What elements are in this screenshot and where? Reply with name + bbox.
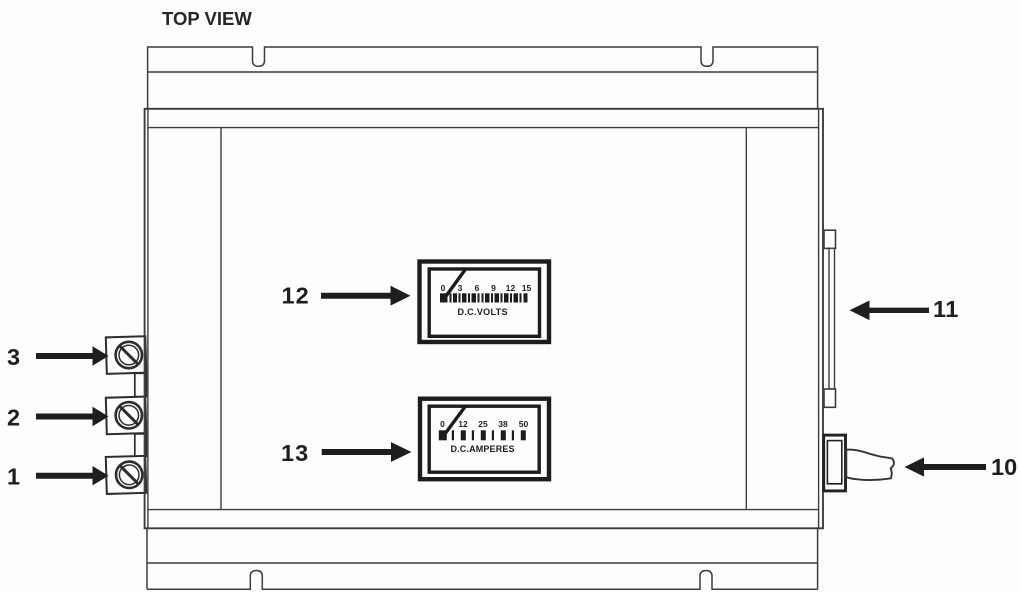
svg-text:50: 50 [519,419,529,429]
svg-text:9: 9 [491,283,496,293]
svg-text:12: 12 [282,283,310,309]
svg-text:3: 3 [458,283,463,293]
svg-text:D.C.VOLTS: D.C.VOLTS [458,307,508,317]
svg-text:3: 3 [7,344,20,370]
svg-text:15: 15 [522,283,532,293]
svg-text:2: 2 [7,405,20,431]
svg-text:12: 12 [506,283,516,293]
svg-text:0: 0 [440,419,445,429]
svg-text:11: 11 [933,296,959,322]
svg-text:0: 0 [441,283,446,293]
svg-text:1: 1 [7,464,20,490]
svg-text:13: 13 [281,440,309,466]
svg-text:25: 25 [478,419,488,429]
svg-text:6: 6 [475,283,480,293]
svg-text:12: 12 [458,419,468,429]
svg-text:38: 38 [498,419,508,429]
svg-text:TOP VIEW: TOP VIEW [162,8,252,29]
svg-text:D.C.AMPERES: D.C.AMPERES [451,444,515,454]
svg-text:10: 10 [991,454,1017,480]
